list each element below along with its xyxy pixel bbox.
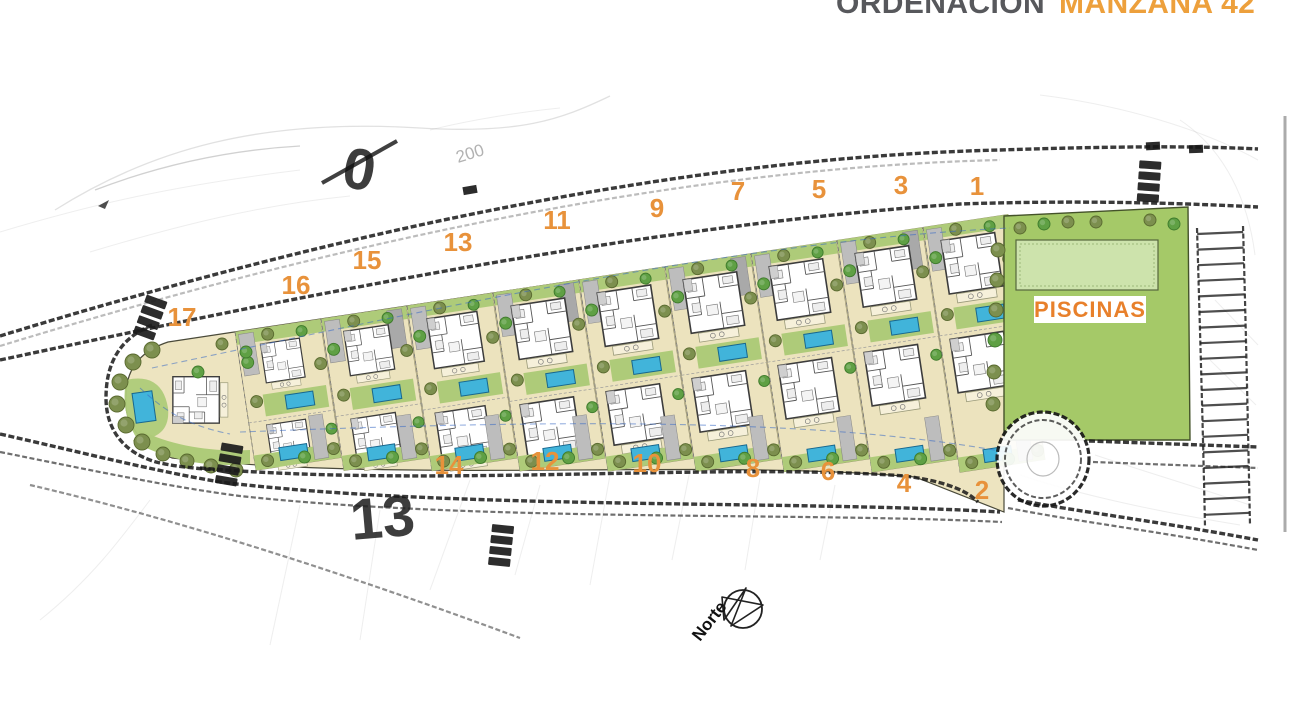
- plot-number-17: 17: [168, 302, 197, 332]
- crosswalk-marker: [133, 295, 168, 341]
- plot-number-11: 11: [543, 205, 571, 235]
- tree-highlight: [992, 275, 998, 281]
- stair-rung: [1202, 404, 1247, 406]
- plot-number-14: 14: [435, 450, 464, 480]
- tree-highlight: [1092, 218, 1097, 223]
- crosswalk-stripe: [491, 524, 514, 534]
- plot-number-15: 15: [353, 245, 382, 275]
- stair-rung: [1198, 263, 1244, 265]
- crosswalk-marker: [488, 524, 514, 567]
- pool: [132, 391, 156, 423]
- stairs-path: [1197, 226, 1250, 527]
- crosswalk-stripe: [1138, 171, 1161, 181]
- house-bottom: [692, 371, 755, 442]
- road-ticks: [462, 142, 1203, 196]
- tree-highlight: [989, 367, 995, 373]
- title-prefix: ORDENACIÓN: [836, 0, 1045, 20]
- stair-rung: [1200, 357, 1246, 359]
- plot-number-12: 12: [531, 446, 560, 476]
- stair-rung: [1200, 326, 1246, 328]
- house-bottom: [606, 384, 669, 455]
- house-top: [344, 325, 396, 384]
- stair-rung: [1199, 294, 1245, 296]
- house-bottom: [864, 344, 927, 415]
- cul-de-sac: [997, 412, 1089, 506]
- plot-number-5: 5: [812, 174, 826, 204]
- site-plan-page: 0 200 13 PISCINAS: [0, 0, 1290, 727]
- crosswalk-stripe: [1137, 193, 1160, 203]
- house-top: [769, 259, 832, 330]
- tree-highlight: [1016, 224, 1021, 229]
- stair-rung: [1203, 450, 1248, 452]
- crosswalk-stripe: [1137, 182, 1160, 192]
- tree-highlight: [182, 456, 188, 462]
- plot-number-4: 4: [897, 468, 912, 498]
- tree-highlight: [158, 449, 164, 455]
- stair-rung: [1204, 497, 1249, 499]
- stair-rung: [1198, 248, 1244, 250]
- tree-highlight: [1146, 216, 1151, 221]
- house-top: [941, 233, 1004, 304]
- tree-highlight: [120, 419, 127, 426]
- plot-number-1: 1: [970, 171, 984, 201]
- plot-number-16: 16: [282, 270, 311, 300]
- crosswalk-marker: [1137, 160, 1162, 202]
- communal-area: PISCINAS: [1004, 207, 1190, 440]
- stair-rung: [1200, 341, 1246, 343]
- road-tick: [1146, 142, 1160, 151]
- stair-rung: [1199, 310, 1245, 312]
- house-top: [511, 298, 574, 369]
- house-bottom: [778, 358, 841, 429]
- house-top: [597, 285, 660, 356]
- communal-pool: [1016, 240, 1158, 290]
- crosswalk-stripe: [488, 557, 511, 567]
- tree-highlight: [136, 436, 143, 443]
- plot-number-7: 7: [731, 176, 745, 206]
- road-tick: [1189, 145, 1203, 153]
- title-highlight: MANZANA 42: [1059, 0, 1255, 20]
- plot-number-9: 9: [650, 193, 664, 223]
- tree-highlight: [146, 344, 153, 351]
- site-plan-drawing: 0 200 13 PISCINAS: [0, 0, 1290, 727]
- tree-highlight: [991, 305, 997, 311]
- tree-highlight: [218, 340, 223, 345]
- house-top: [855, 246, 918, 317]
- north-compass: Norte: [688, 588, 763, 644]
- stair-rung: [1198, 279, 1244, 281]
- stair-rung: [1203, 435, 1248, 437]
- house-top: [427, 311, 486, 377]
- tree-highlight: [993, 245, 999, 251]
- pools-area-label: PISCINAS: [1034, 297, 1146, 322]
- stair-rung: [1201, 372, 1247, 374]
- page-title: ORDENACIÓNMANZANA 42: [836, 0, 1255, 21]
- plot-number-13: 13: [444, 227, 473, 257]
- plot-number-8: 8: [746, 453, 760, 483]
- tree-highlight: [127, 356, 134, 363]
- tree-highlight: [194, 368, 199, 373]
- tree-highlight: [1170, 220, 1175, 225]
- tree-highlight: [1064, 218, 1069, 223]
- crosswalk-stripe: [1139, 160, 1162, 170]
- plot-number-3: 3: [894, 170, 908, 200]
- tree-highlight: [206, 461, 212, 467]
- crosswalk-stripe: [490, 535, 513, 545]
- road-tick: [462, 185, 477, 195]
- tree-highlight: [114, 376, 121, 383]
- house-top: [683, 272, 746, 343]
- tree-highlight: [988, 399, 994, 405]
- stair-rung: [1204, 482, 1249, 484]
- tree-highlight: [111, 398, 118, 405]
- plot-number-6: 6: [821, 456, 835, 486]
- ghost-contour-label: 200: [454, 140, 487, 166]
- compass-label: Norte: [688, 598, 730, 645]
- tree-highlight: [990, 335, 996, 341]
- stair-rung: [1197, 232, 1243, 234]
- plot-number-10: 10: [633, 448, 662, 478]
- house-top: [260, 338, 306, 390]
- house-17: [173, 377, 228, 423]
- ghost-parcel-number: 13: [347, 483, 417, 553]
- plot-number-2: 2: [975, 475, 989, 505]
- crosswalk-stripe: [489, 546, 512, 556]
- tree-highlight: [1040, 220, 1045, 225]
- stair-rung: [1202, 419, 1247, 421]
- stair-rung: [1205, 513, 1250, 515]
